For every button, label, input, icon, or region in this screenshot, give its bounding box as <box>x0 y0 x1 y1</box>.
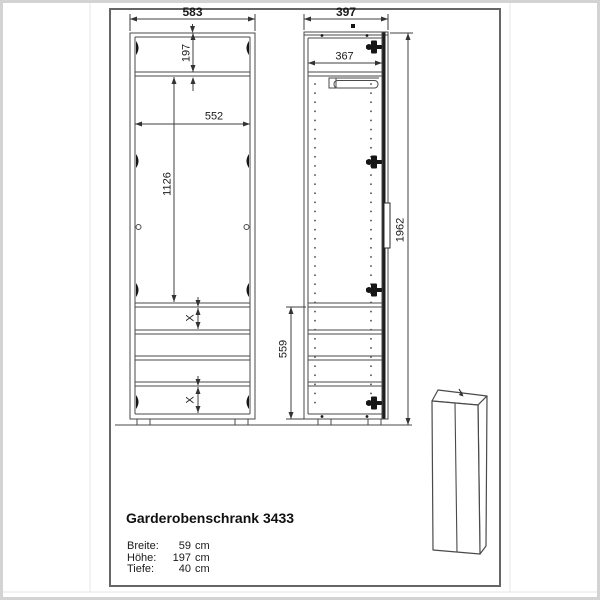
dim-label-overall-depth: 397 <box>336 6 356 18</box>
dim-label-lower-section-height: 559 <box>278 340 289 358</box>
side-hinge-icons <box>366 41 390 410</box>
front-foot-right <box>235 419 248 425</box>
spec-unit: cm <box>195 541 210 552</box>
dim-label-interior-depth: 367 <box>335 52 353 63</box>
spec-label: Breite: <box>127 541 169 552</box>
spec-value: 40 <box>169 564 191 575</box>
spec-row-height: Höhe:197cm <box>127 553 210 564</box>
spec-row-depth: Tiefe:40cm <box>127 564 210 575</box>
wall-anchor-icon <box>351 24 355 28</box>
shelf-pin-icon <box>136 225 141 230</box>
spec-label: Höhe: <box>127 553 169 564</box>
spec-value: 59 <box>169 541 191 552</box>
spec-label: Tiefe: <box>127 564 169 575</box>
dim-label-shelf-gap-lower: X <box>186 396 197 403</box>
dim-label-overall-height: 1962 <box>395 218 406 242</box>
spec-row-width: Breite:59cm <box>127 541 210 552</box>
spec-value: 197 <box>169 553 191 564</box>
side-elevation <box>304 24 388 425</box>
side-foot-left <box>318 419 331 425</box>
spec-unit: cm <box>195 553 210 564</box>
dim-label-middle-compartment-height: 1126 <box>162 172 173 196</box>
dim-label-interior-width: 552 <box>205 112 223 123</box>
dim-label-overall-width: 583 <box>182 6 202 18</box>
side-foot-right <box>368 419 381 425</box>
front-hinge-icons <box>136 41 249 409</box>
drawing-linework <box>0 0 600 600</box>
front-elevation <box>130 33 255 425</box>
shelf-pin-icon <box>244 225 249 230</box>
isometric-thumbnail <box>432 389 487 554</box>
technical-drawing-page: 583 197 552 1126 X X 397 367 559 1962 Ga… <box>0 0 600 600</box>
page-edge-lines <box>3 3 597 592</box>
dim-label-shelf-gap-upper: X <box>186 314 197 321</box>
product-title: Garderobenschrank 3433 <box>126 511 294 526</box>
dim-label-top-compartment-height: 197 <box>181 44 192 62</box>
spec-unit: cm <box>195 564 210 575</box>
door-handle <box>384 203 390 248</box>
front-foot-left <box>137 419 150 425</box>
clothes-rail <box>329 78 379 88</box>
